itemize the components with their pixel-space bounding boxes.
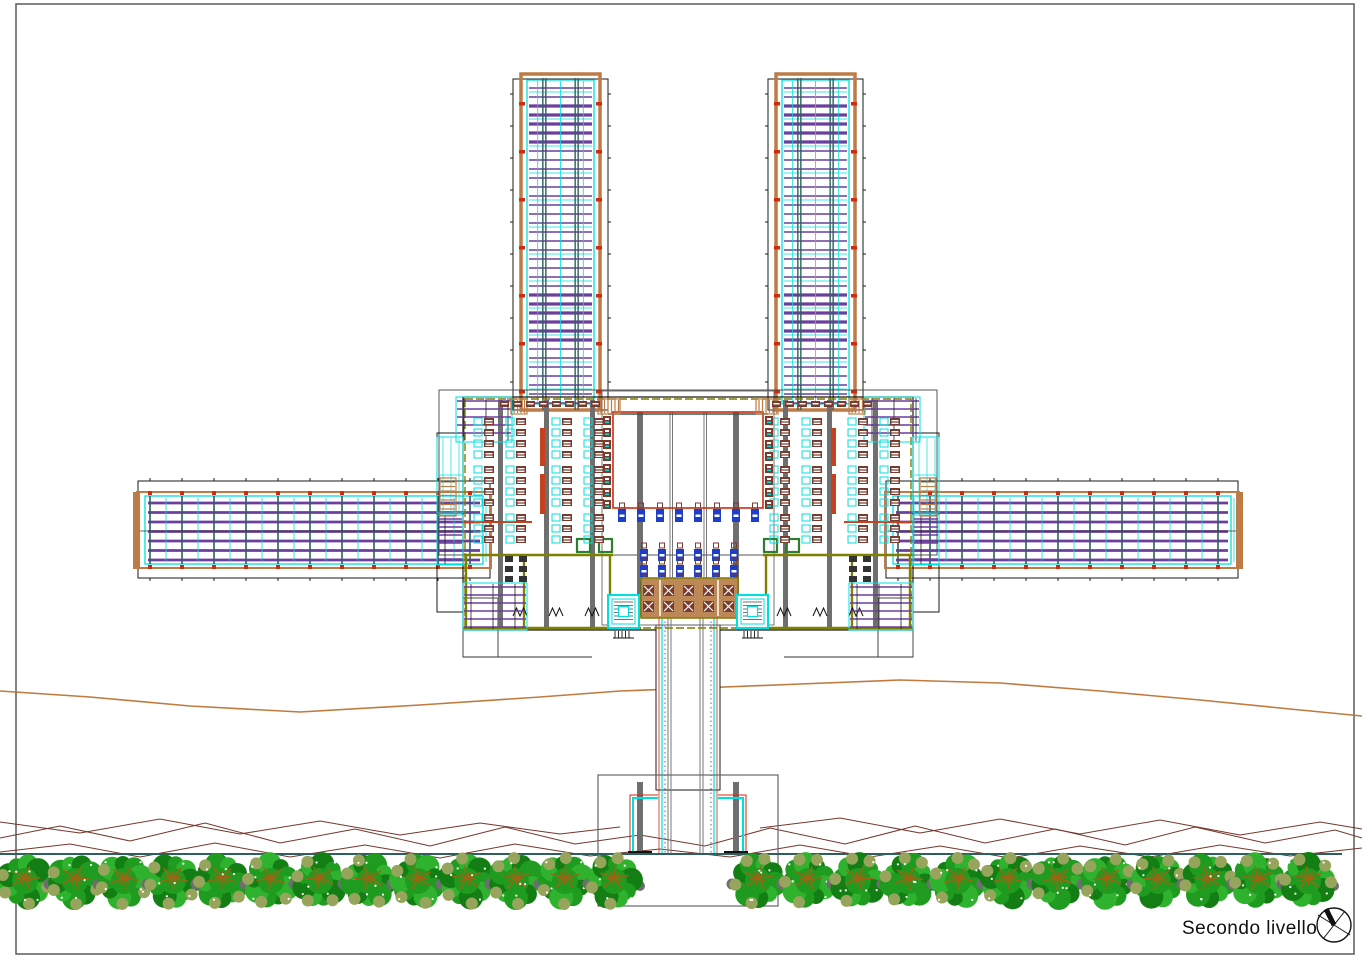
floor-plan — [0, 0, 1362, 962]
plan-title: Secondo livello — [1182, 918, 1317, 940]
drawing-sheet: { "title": {"text": "Secondo livello"}, … — [0, 0, 1362, 962]
sheet-border — [16, 4, 1354, 954]
plan-title-text: Secondo livello — [1182, 918, 1317, 939]
cafe-deck — [641, 578, 738, 618]
